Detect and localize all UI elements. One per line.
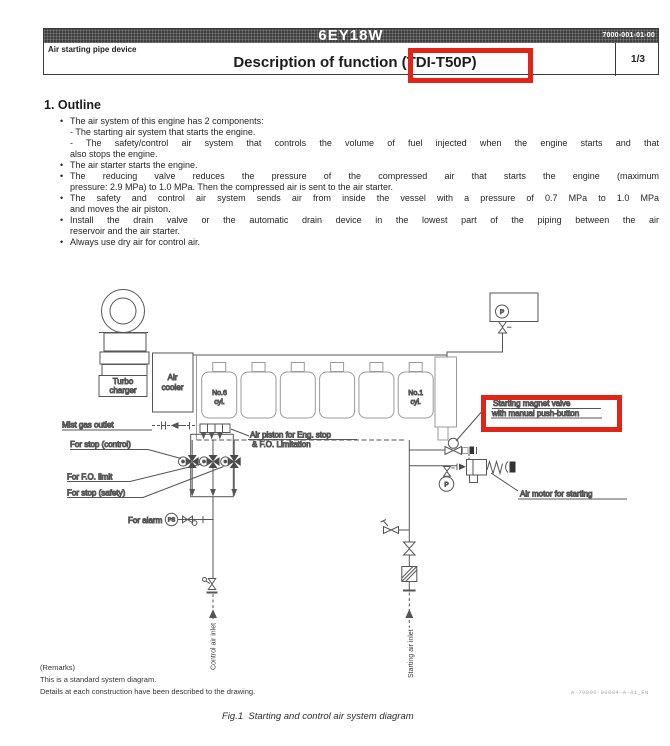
bullet-line: Always use dry air for control air. xyxy=(57,237,659,248)
bullet-subline: - The starting air system that starts th… xyxy=(57,127,659,138)
air-cooler-label-2: cooler xyxy=(162,383,184,392)
bullet-continuation: and moves the air piston. xyxy=(57,204,659,215)
outline-bullet-list: The air system of this engine has 2 comp… xyxy=(57,116,659,248)
bullet-subline: - The safety/control air system that con… xyxy=(57,138,659,149)
cyl6-label-2: cyl. xyxy=(214,399,225,406)
engine-block-outline xyxy=(193,355,457,440)
gauge-p-top-label: P xyxy=(500,309,504,316)
air-piston-symbol xyxy=(200,424,249,438)
mist-gas-outlet-label: Mist gas outlet xyxy=(62,421,114,430)
remarks-line: (Remarks) xyxy=(40,662,255,674)
turbo-charger-label-1: Turbo xyxy=(113,377,134,386)
bullet-continuation: pressure: 2.9 MPa) to 1.0 MPa. Then the … xyxy=(57,182,659,193)
bullet-line: Install the drain valve or the automatic… xyxy=(57,215,659,226)
air-cooler-label-1: Air xyxy=(168,373,178,382)
cyl6-label-1: No.6 xyxy=(212,390,227,397)
control-valve-group xyxy=(178,434,240,496)
air-piston-label-2: & F.O. Limitation xyxy=(252,440,311,449)
starting-air-inlet-label: Starting air inlet xyxy=(408,629,415,678)
turbo-charger-label-2: charger xyxy=(109,386,136,395)
pressure-gauge-panel xyxy=(447,293,538,357)
bullet-continuation: reservoir and the air starter. xyxy=(57,226,659,237)
gauge-ps-label: PS xyxy=(168,518,176,524)
page-number: 1/3 xyxy=(616,43,660,76)
gauge-p-motor-label: P xyxy=(444,482,448,489)
air-piston-label-1: Air piston for Eng. stop xyxy=(250,431,331,440)
header-model-bar: 6EY18W 7000-001-01-00 xyxy=(44,29,658,43)
for-alarm-label: For alarm xyxy=(128,516,163,525)
bullet-line: The air system of this engine has 2 comp… xyxy=(57,116,659,127)
cyl1-label-2: cyl. xyxy=(410,399,421,406)
for-stop-control-label: For stop (control) xyxy=(70,440,131,449)
remarks-line: Details at each construction have been d… xyxy=(40,686,255,698)
air-system-diagram: Turbo charger Air cooler No. xyxy=(0,280,670,720)
air-motor-label: Air motor for starting xyxy=(520,490,592,499)
for-fo-limit-label: For F.O. limit xyxy=(67,473,113,482)
highlight-box-tdi-t50p xyxy=(408,48,533,83)
figure-caption: Fig.1 Starting and control air system di… xyxy=(222,711,414,722)
section-heading: 1. Outline xyxy=(44,98,101,112)
cylinder-row xyxy=(202,363,434,419)
drawing-code: A-70000-00004-A-01_EN xyxy=(571,689,649,696)
highlight-box-magnet-valve xyxy=(481,395,622,432)
bullet-line: The air starter starts the engine. xyxy=(57,160,659,171)
document-number: 7000-001-01-00 xyxy=(602,32,655,39)
bullet-line: The safety and control air system sends … xyxy=(57,193,659,204)
remarks-block: (Remarks) This is a standard system diag… xyxy=(40,662,255,698)
remarks-line: This is a standard system diagram. xyxy=(40,674,255,686)
header-table: 6EY18W 7000-001-01-00 Air starting pipe … xyxy=(43,28,659,75)
cyl1-label-1: No.1 xyxy=(408,390,423,397)
starting-air-line xyxy=(381,409,519,678)
engine-model: 6EY18W xyxy=(44,28,658,44)
header-subtitle: Air starting pipe device xyxy=(48,45,136,54)
for-stop-safety-label: For stop (safety) xyxy=(67,489,126,498)
bullet-subline: also stops the engine. xyxy=(57,149,659,160)
bullet-line: The reducing valve reduces the pressure … xyxy=(57,171,659,182)
